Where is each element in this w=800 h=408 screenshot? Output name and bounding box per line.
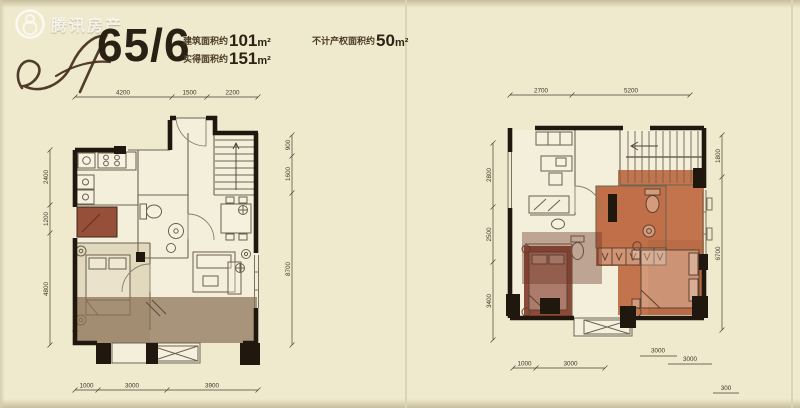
floorplan-page: 腾讯房产 65/6 建筑面积约101m² 实得面积约151m² 不计产权面积约5… bbox=[0, 0, 800, 408]
dim-label: 3000 bbox=[683, 356, 698, 363]
area-noncounted-unit: m² bbox=[395, 37, 408, 49]
area-built-label: 建筑面积约 bbox=[183, 36, 228, 46]
area-actual: 实得面积约151m² bbox=[183, 49, 271, 69]
utility-room-red bbox=[77, 207, 117, 237]
area-noncounted-label: 不计产权面积约 bbox=[312, 36, 375, 46]
dim-label: 5200 bbox=[624, 88, 639, 95]
dim-label: 4200 bbox=[116, 90, 131, 97]
dim-label: 1500 bbox=[182, 90, 197, 97]
dim-label: 3000 bbox=[651, 348, 666, 355]
brown-overlay-band bbox=[76, 297, 257, 343]
floor-plan-upper-level: 2700 5200 2800 2500 3400 1800 6700 1000 … bbox=[470, 80, 790, 408]
dim-label: 300 bbox=[721, 385, 732, 392]
left-edge-shade bbox=[0, 0, 5, 408]
master-bedroom bbox=[632, 242, 699, 316]
dim-label: 1800 bbox=[715, 149, 722, 164]
maroon-overlay-band bbox=[522, 232, 602, 284]
dim-label: 1200 bbox=[43, 212, 50, 227]
dim-label: 4800 bbox=[43, 282, 50, 297]
dim-label: 2400 bbox=[43, 170, 50, 185]
dim-label: 1000 bbox=[517, 361, 532, 368]
center-divider-line bbox=[405, 0, 407, 408]
dim-label: 1000 bbox=[79, 383, 94, 390]
dim-label: 8700 bbox=[285, 262, 292, 277]
dim-label: 2500 bbox=[486, 227, 493, 242]
area-built-value: 101 bbox=[229, 31, 257, 50]
area-built: 建筑面积约101m² bbox=[183, 31, 271, 51]
right-divider-line bbox=[791, 0, 793, 408]
dim-label: 900 bbox=[285, 139, 292, 150]
dim-label: 6700 bbox=[715, 246, 722, 261]
area-noncounted-value: 50 bbox=[376, 31, 395, 50]
dim-label: 3900 bbox=[205, 383, 220, 390]
unit-number: 65/6 bbox=[97, 18, 191, 72]
area-built-unit: m² bbox=[257, 37, 270, 49]
area-actual-value: 151 bbox=[229, 49, 257, 68]
dim-label: 1600 bbox=[285, 167, 292, 182]
area-actual-label: 实得面积约 bbox=[183, 54, 228, 64]
dim-label: 2800 bbox=[486, 168, 493, 183]
dim-label: 2200 bbox=[225, 90, 240, 97]
dim-label: 2700 bbox=[534, 88, 549, 95]
dim-label: 3000 bbox=[563, 361, 578, 368]
dim-label: 3000 bbox=[125, 383, 140, 390]
area-noncounted: 不计产权面积约50m² bbox=[312, 31, 408, 51]
floor-plan-lower-level: 4200 1500 2200 2400 1200 4800 900 1600 8… bbox=[30, 80, 330, 408]
dim-label: 3400 bbox=[486, 294, 493, 309]
area-actual-unit: m² bbox=[257, 55, 270, 67]
